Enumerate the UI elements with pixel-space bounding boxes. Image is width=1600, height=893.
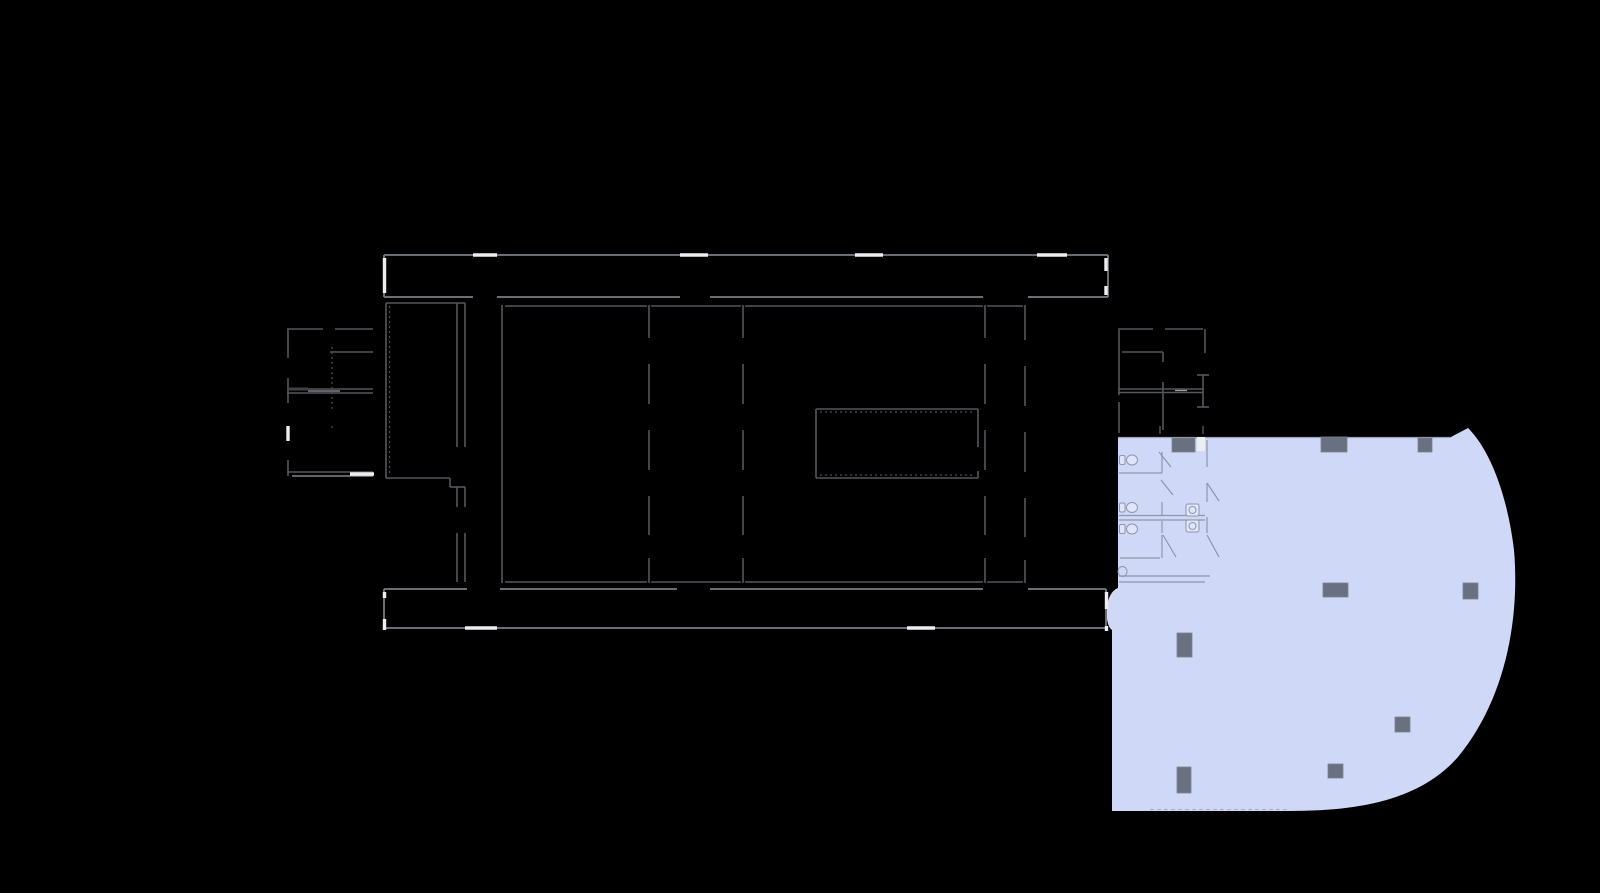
column bbox=[1177, 767, 1191, 793]
column bbox=[1395, 717, 1410, 732]
column bbox=[1321, 437, 1347, 452]
toilet-icon bbox=[1120, 525, 1126, 534]
toilet-icon bbox=[1127, 455, 1138, 465]
column bbox=[1418, 438, 1432, 452]
toilet-icon bbox=[1120, 503, 1126, 512]
floorplan-canvas bbox=[0, 0, 1600, 893]
wall-opening bbox=[1197, 437, 1205, 451]
column bbox=[1172, 438, 1195, 452]
column bbox=[1323, 583, 1348, 597]
toilet-icon bbox=[1127, 503, 1138, 513]
floorplan-stage bbox=[0, 0, 1600, 893]
column bbox=[1463, 583, 1478, 599]
column bbox=[1177, 633, 1192, 657]
column bbox=[1328, 764, 1343, 778]
sink-icon bbox=[1186, 520, 1199, 532]
toilet-icon bbox=[1127, 524, 1138, 534]
toilet-icon bbox=[1120, 456, 1126, 465]
highlighted-unit-region[interactable] bbox=[1107, 428, 1516, 811]
sink-icon bbox=[1186, 504, 1199, 516]
highlighted-unit-group bbox=[1107, 428, 1516, 811]
